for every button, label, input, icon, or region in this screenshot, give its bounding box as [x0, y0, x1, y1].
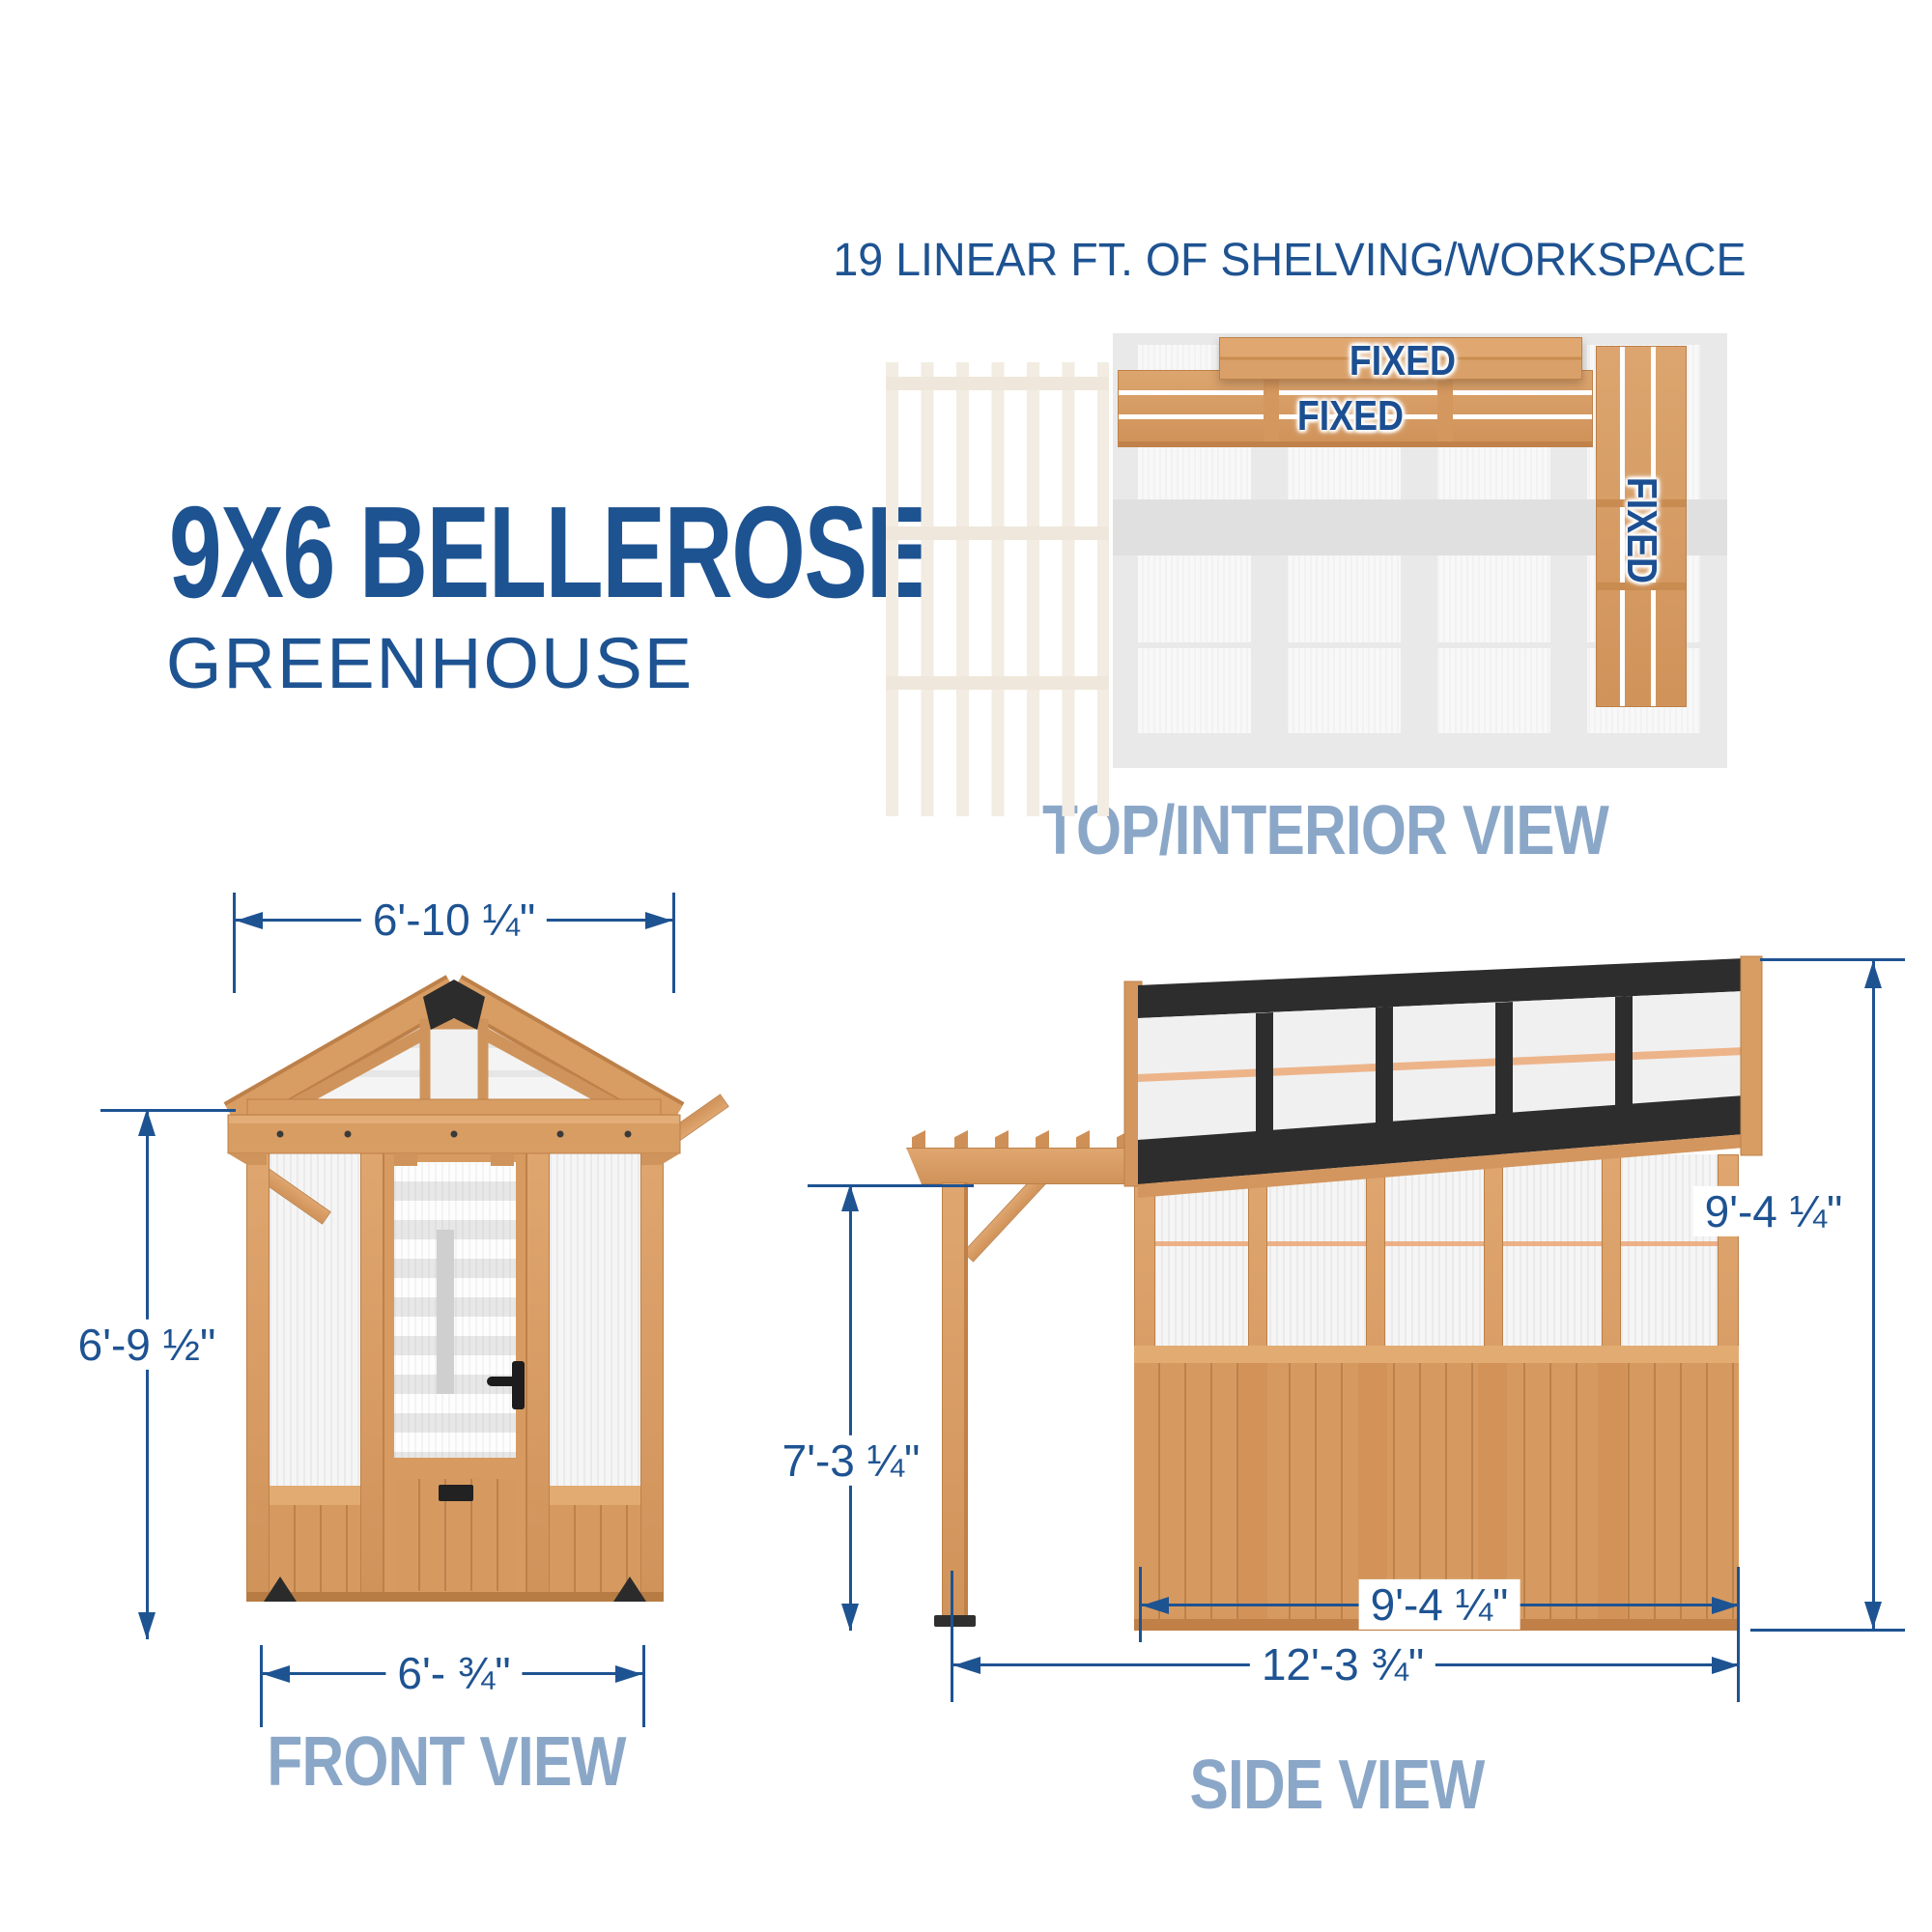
arrow-right-icon: [645, 912, 672, 929]
pergola-rafter-tail: [1036, 1130, 1049, 1148]
front-right-window: [550, 1153, 640, 1488]
corner-post-right: [640, 1146, 664, 1600]
arrow-left-icon: [236, 912, 263, 929]
front-ext-line-top-right: [672, 893, 675, 993]
pergola-top-view: [886, 362, 1109, 816]
arrow-left-icon: [1142, 1597, 1169, 1614]
side-greenhouse-depth-dim: 9'-4 ¼": [1359, 1579, 1520, 1630]
side-ext-line-height-bottom: [1750, 1629, 1905, 1632]
side-walls: [1134, 1154, 1739, 1631]
pergola-rafter-tail: [954, 1130, 968, 1148]
front-roof-width-dim: 6'-10 ¼": [361, 895, 547, 945]
front-walls: [246, 1146, 664, 1639]
page-subtitle: GREENHOUSE: [72, 628, 787, 699]
base-strip: [246, 1592, 664, 1602]
front-base-width-dim: 6'- ¾": [385, 1648, 522, 1698]
front-dim-line-height: [146, 1109, 149, 1639]
door-jamb-left: [360, 1146, 384, 1600]
pergola-rafter-tail: [1076, 1130, 1090, 1148]
pergola-post: [942, 1182, 968, 1625]
door-plate: [439, 1485, 473, 1501]
shelving-heading: 19 LINEAR FT. OF SHELVING/WORKSPACE: [816, 234, 1763, 287]
front-gable-roof: [222, 974, 686, 1167]
side-ext-line-overall-left: [951, 1571, 953, 1702]
fixed-label-side: FIXED: [1620, 477, 1662, 583]
side-dim-line-height: [1872, 961, 1875, 1629]
arrow-up-icon: [1864, 961, 1882, 988]
roof-right-trim: [1741, 956, 1762, 1155]
door-window: [394, 1162, 516, 1458]
interior-shelf-line: [1155, 1241, 1718, 1246]
arrow-down-icon: [1864, 1602, 1882, 1629]
side-ext-line-height-top: [1760, 958, 1905, 961]
front-view-caption: FRONT VIEW: [267, 1727, 625, 1797]
front-ext-line-base-right: [642, 1645, 645, 1727]
door-handle-lever: [487, 1377, 520, 1386]
side-roof: [1121, 949, 1768, 1200]
door: [384, 1150, 526, 1596]
gable-window: [425, 1024, 483, 1107]
front-wall-height-dim: 6'-9 ½": [67, 1320, 228, 1370]
pergola-brace: [963, 1175, 1046, 1263]
arrow-up-icon: [841, 1184, 859, 1211]
side-overall-height-dim: 9'-4 ¼": [1693, 1186, 1855, 1236]
arrow-down-icon: [138, 1612, 156, 1639]
pergola-rafter-tail: [995, 1130, 1009, 1148]
fixed-label-upper: FIXED: [1350, 340, 1456, 383]
pergola-beam: [906, 1148, 1140, 1184]
side-overall-depth-dim: 12'-3 ¾": [1250, 1639, 1435, 1690]
corner-post-left: [246, 1146, 270, 1600]
arrow-right-icon: [615, 1665, 642, 1683]
pergola-rafter-tail: [912, 1130, 925, 1148]
arrow-left-icon: [263, 1665, 290, 1683]
side-ext-line-depth-right: [1737, 1567, 1740, 1702]
wainscot-stud: [1238, 1363, 1267, 1619]
arrow-left-icon: [953, 1657, 980, 1674]
fixed-label-lower: FIXED: [1297, 395, 1404, 438]
arrow-up-icon: [138, 1109, 156, 1136]
page-title: 9X6 BELLEROSE: [169, 487, 691, 617]
door-jamb-right: [526, 1146, 550, 1600]
wainscot-stud: [1598, 1363, 1627, 1619]
pergola-post-base: [934, 1615, 976, 1627]
side-dim-line-pergola: [849, 1184, 852, 1631]
arrow-down-icon: [841, 1604, 859, 1631]
front-ext-line-base-left: [260, 1645, 263, 1727]
arrow-right-icon: [1712, 1597, 1739, 1614]
top-view-caption: TOP/INTERIOR VIEW: [1042, 796, 1608, 866]
front-ext-line-top-left: [233, 893, 236, 993]
side-view-caption: SIDE VIEW: [1190, 1750, 1485, 1820]
side-pergola-height-dim: 7'-3 ¼": [771, 1435, 932, 1486]
front-ext-line-height-top: [100, 1109, 236, 1112]
greenhouse-dimension-diagram: 9X6 BELLEROSE GREENHOUSE 19 LINEAR FT. O…: [0, 0, 1932, 1932]
arrow-right-icon: [1712, 1657, 1739, 1674]
side-ext-line-pergola-top: [808, 1184, 974, 1187]
